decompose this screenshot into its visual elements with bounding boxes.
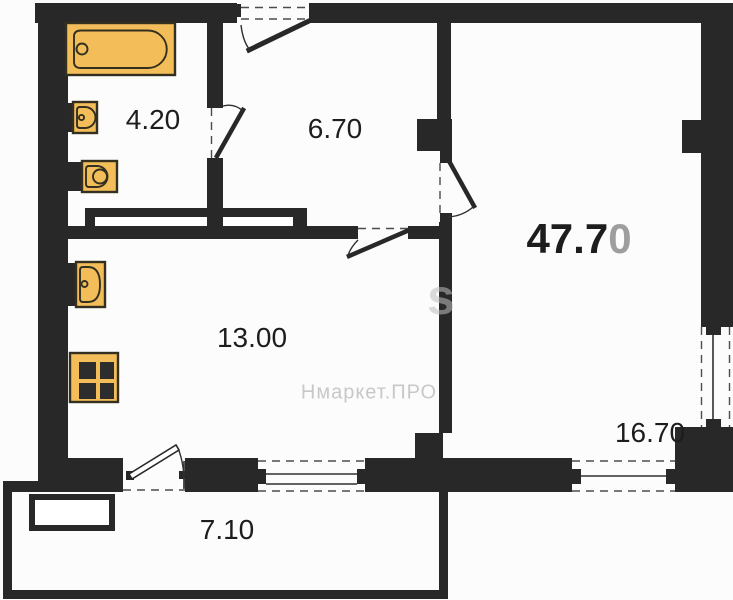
area-label-kitchen: 13.00	[217, 322, 287, 354]
total-area-main: 47.7	[526, 215, 608, 262]
toilet-icon	[67, 161, 117, 192]
living-room-door-leaf	[449, 161, 474, 206]
watermark-large-letter: s	[427, 268, 455, 326]
area-label-balcony: 7.10	[200, 514, 255, 546]
bathtub-icon	[66, 23, 175, 75]
bathroom-door-arc	[223, 105, 243, 111]
stove-icon	[70, 353, 118, 402]
total-area-suffix: 0	[608, 215, 631, 262]
bathroom-door	[212, 105, 244, 158]
floor-plan-drawing	[0, 0, 733, 600]
right-window	[702, 327, 730, 427]
entrance-door-arc	[241, 25, 250, 50]
kitchen-window	[258, 461, 365, 491]
area-label-bathroom: 4.20	[126, 104, 181, 136]
area-label-hallway: 6.70	[308, 113, 363, 145]
living-room-door	[440, 161, 474, 217]
area-label-living-room: 16.70	[615, 417, 685, 449]
watermark-text: Нмаркет.ПРО	[301, 382, 437, 405]
balcony-box	[32, 497, 112, 528]
bathroom-door-leaf	[217, 110, 243, 156]
living-room-window	[572, 461, 675, 491]
bathroom-sink-icon	[66, 102, 97, 133]
kitchen-sink-icon	[68, 262, 105, 307]
floor-plan: 4.20 6.70 13.00 16.70 7.10 47.70 s Нмарк…	[0, 0, 733, 600]
total-area-label: 47.70	[526, 215, 631, 263]
entrance-door	[233, 4, 317, 50]
balcony-door-leaf	[129, 445, 179, 479]
entrance-door-leaf	[249, 21, 309, 50]
balcony-door	[123, 445, 187, 490]
